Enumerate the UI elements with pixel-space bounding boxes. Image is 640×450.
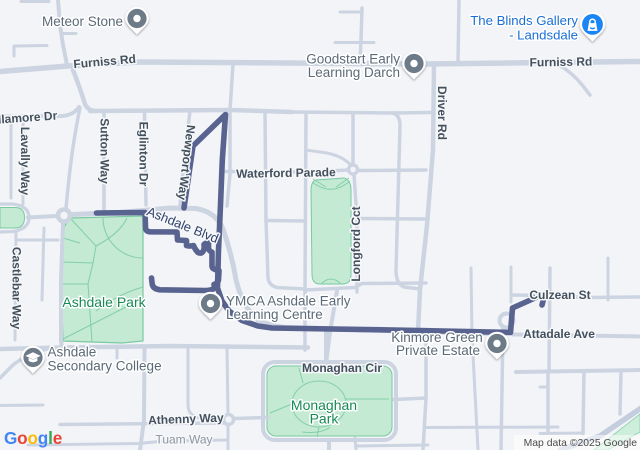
svg-text:Lavally Way: Lavally Way (18, 127, 32, 196)
svg-text:Monaghan Cir: Monaghan Cir (302, 361, 382, 375)
svg-text:Meteor Stone: Meteor Stone (42, 14, 123, 29)
svg-text:Learning Centre: Learning Centre (226, 307, 323, 322)
svg-text:Castlebar Way: Castlebar Way (10, 247, 24, 330)
svg-text:Culzean St: Culzean St (529, 288, 590, 302)
svg-text:Longford Cct: Longford Cct (349, 206, 363, 281)
svg-text:Ashdale Park: Ashdale Park (62, 294, 146, 310)
svg-text:Learning Darch: Learning Darch (308, 65, 400, 80)
svg-text:Eglinton Dr: Eglinton Dr (137, 122, 151, 187)
svg-text:Ashdale: Ashdale (48, 345, 97, 360)
svg-text:Furniss Rd: Furniss Rd (529, 54, 592, 69)
svg-text:Park: Park (310, 411, 340, 427)
svg-text:Private Estate: Private Estate (396, 343, 480, 358)
svg-text:Map data ©2025 Google: Map data ©2025 Google (524, 438, 638, 449)
svg-text:Secondary College: Secondary College (48, 359, 162, 374)
svg-text:Tuam Way: Tuam Way (155, 433, 212, 447)
svg-text:- Landsdale: - Landsdale (509, 28, 578, 43)
svg-text:Google: Google (4, 428, 62, 448)
svg-text:Attadale Ave: Attadale Ave (523, 327, 595, 341)
svg-text:Sutton Way: Sutton Way (98, 118, 112, 184)
svg-text:Waterford Parade: Waterford Parade (236, 165, 336, 181)
svg-text:Athenny Way: Athenny Way (148, 411, 224, 428)
svg-text:Driver Rd: Driver Rd (435, 86, 449, 140)
svg-text:The Blinds Gallery: The Blinds Gallery (470, 13, 578, 28)
